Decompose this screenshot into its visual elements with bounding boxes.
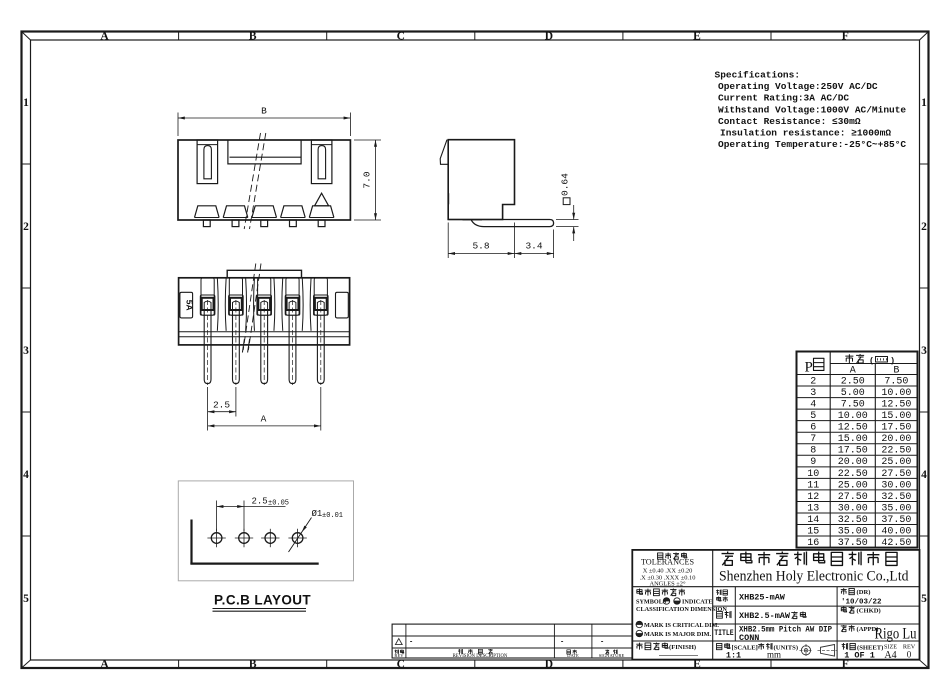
svg-text:1: 1 [921, 97, 927, 109]
svg-text:-: - [409, 639, 413, 647]
svg-text:Contact Resistance: ≤30mΩ: Contact Resistance: ≤30mΩ [718, 116, 861, 127]
svg-text:1:1: 1:1 [726, 651, 741, 661]
svg-text:11: 11 [807, 480, 819, 491]
svg-text:12: 12 [807, 492, 819, 503]
svg-text:1 OF 1: 1 OF 1 [844, 651, 875, 661]
svg-text:40.00: 40.00 [881, 526, 911, 537]
svg-text:3.4: 3.4 [525, 241, 542, 252]
svg-text:DATE: DATE [567, 653, 579, 658]
svg-text:5: 5 [921, 593, 927, 605]
svg-text:±0.01: ±0.01 [322, 512, 343, 520]
svg-text:20.00: 20.00 [881, 434, 911, 445]
svg-text:22.50: 22.50 [838, 469, 868, 480]
svg-text:Operating Voltage:250V AC/DC: Operating Voltage:250V AC/DC [718, 81, 878, 92]
svg-text:16: 16 [807, 538, 819, 549]
svg-text:3: 3 [810, 388, 816, 399]
svg-text:4: 4 [921, 469, 927, 481]
svg-text:E: E [693, 30, 701, 42]
svg-text:13: 13 [807, 503, 819, 514]
svg-text:D: D [545, 30, 553, 42]
svg-text:A: A [850, 365, 856, 376]
svg-text:CLASSIFICATION DIMENSION: CLASSIFICATION DIMENSION [636, 606, 727, 613]
svg-text:15: 15 [807, 526, 819, 537]
svg-text:3: 3 [921, 345, 927, 357]
svg-text:±0.05: ±0.05 [268, 500, 289, 508]
svg-text:INDICATE: INDICATE [682, 599, 712, 606]
svg-text:Current Rating:3A AC/DC: Current Rating:3A AC/DC [718, 93, 849, 104]
svg-text:42.50: 42.50 [881, 538, 911, 549]
svg-text:A4: A4 [884, 650, 896, 661]
svg-text:B: B [893, 365, 899, 376]
svg-text:7.50: 7.50 [884, 376, 908, 387]
svg-text:0: 0 [907, 650, 912, 660]
svg-text:6: 6 [810, 423, 816, 434]
svg-text:(DR): (DR) [857, 589, 871, 596]
svg-text:2: 2 [23, 221, 29, 233]
svg-text:TOLERANCES: TOLERANCES [641, 558, 695, 567]
svg-text:10: 10 [807, 469, 819, 480]
svg-text:27.50: 27.50 [838, 492, 868, 503]
svg-text:5A: 5A [184, 300, 194, 311]
svg-text:1: 1 [23, 97, 29, 109]
svg-text:-: - [560, 639, 564, 647]
svg-text:32.50: 32.50 [881, 492, 911, 503]
svg-text:2.5: 2.5 [213, 400, 230, 411]
svg-text:32.50: 32.50 [838, 515, 868, 526]
svg-text:(CHKD): (CHKD) [857, 608, 881, 615]
svg-text:Operating Temperature:-25°C~+8: Operating Temperature:-25°C~+85°C [718, 139, 906, 150]
svg-text:25.00: 25.00 [881, 457, 911, 468]
svg-text:A: A [100, 30, 109, 42]
svg-text:XHB25-mAW: XHB25-mAW [739, 593, 786, 603]
svg-text:20.00: 20.00 [838, 457, 868, 468]
svg-text:(FINISH): (FINISH) [669, 644, 696, 651]
svg-text:30.00: 30.00 [881, 480, 911, 491]
svg-text:2: 2 [921, 221, 927, 233]
svg-text:0.64: 0.64 [560, 173, 571, 196]
svg-text:A: A [100, 658, 109, 670]
svg-text:B: B [249, 658, 257, 670]
svg-text:X ±0.40 .XX ±0.20: X ±0.40 .XX ±0.20 [643, 567, 693, 574]
svg-text:5: 5 [810, 411, 816, 422]
svg-text:SIGNATURE: SIGNATURE [599, 653, 625, 658]
svg-text:(: ( [869, 356, 874, 366]
svg-text:10.00: 10.00 [838, 411, 868, 422]
svg-text:7.50: 7.50 [841, 400, 865, 411]
svg-text:mm: mm [767, 650, 781, 660]
svg-text:SYMBOLS: SYMBOLS [636, 599, 667, 606]
svg-text:15.00: 15.00 [838, 434, 868, 445]
svg-text:MARK IS MAJOR DIM.: MARK IS MAJOR DIM. [644, 631, 711, 638]
svg-text:ANGLES ±2°: ANGLES ±2° [649, 580, 686, 587]
svg-text:-: - [600, 639, 604, 647]
svg-text:MARK IS CRITICAL DIM.: MARK IS CRITICAL DIM. [644, 622, 719, 629]
svg-text:8: 8 [810, 446, 816, 457]
svg-text:XHB2.5-mAW: XHB2.5-mAW [739, 611, 791, 621]
svg-text:5.8: 5.8 [472, 241, 489, 252]
svg-text:Withstand Voltage:1000V AC/Min: Withstand Voltage:1000V AC/Minute [718, 104, 906, 115]
svg-text:A: A [261, 414, 267, 425]
svg-text:2.5: 2.5 [252, 497, 268, 507]
svg-text:CONN: CONN [739, 633, 759, 643]
svg-text:Rigo Lu: Rigo Lu [875, 626, 917, 643]
svg-text:REV: REV [394, 653, 404, 658]
svg-text:4: 4 [23, 469, 29, 481]
svg-text:P: P [805, 360, 813, 376]
svg-text:B: B [261, 106, 267, 117]
svg-text:10.00: 10.00 [881, 388, 911, 399]
svg-text:12.50: 12.50 [881, 400, 911, 411]
svg-text:22.50: 22.50 [881, 446, 911, 457]
svg-text:30.00: 30.00 [838, 503, 868, 514]
svg-text:B: B [249, 30, 257, 42]
svg-text:D: D [545, 658, 553, 670]
svg-text:C: C [397, 658, 405, 670]
svg-text:Shenzhen Holy Electronic Co.,L: Shenzhen Holy Electronic Co.,Ltd [719, 569, 909, 585]
svg-text:27.50: 27.50 [881, 469, 911, 480]
svg-text:35.00: 35.00 [881, 503, 911, 514]
svg-text:17.50: 17.50 [881, 423, 911, 434]
svg-text:TITLE: TITLE [714, 629, 734, 638]
svg-text:3: 3 [23, 345, 29, 357]
svg-text:2.50: 2.50 [841, 376, 865, 387]
svg-text:Insulation resistance: ≥1000mΩ: Insulation resistance: ≥1000mΩ [720, 128, 891, 139]
svg-text:15.00: 15.00 [881, 411, 911, 422]
svg-text:Ø1: Ø1 [312, 509, 323, 519]
svg-text:Specifications:: Specifications: [715, 70, 801, 81]
svg-text:'10/03/22: '10/03/22 [841, 599, 882, 607]
svg-text:2: 2 [810, 376, 816, 387]
svg-text:5: 5 [23, 593, 29, 605]
svg-text:P.C.B LAYOUT: P.C.B LAYOUT [214, 593, 311, 608]
svg-text:F: F [842, 30, 849, 42]
svg-text:5.00: 5.00 [841, 388, 865, 399]
svg-text:37.50: 37.50 [881, 515, 911, 526]
svg-text:37.50: 37.50 [838, 538, 868, 549]
svg-text:9: 9 [810, 457, 816, 468]
svg-text:REVISION DESCRIPTION: REVISION DESCRIPTION [453, 654, 508, 659]
svg-text:35.00: 35.00 [838, 526, 868, 537]
svg-text:17.50: 17.50 [838, 446, 868, 457]
svg-text:7: 7 [810, 434, 816, 445]
svg-text:14: 14 [807, 515, 819, 526]
svg-text:7.0: 7.0 [362, 171, 373, 188]
svg-text:25.00: 25.00 [838, 480, 868, 491]
svg-text:4: 4 [810, 400, 816, 411]
svg-text:12.50: 12.50 [838, 423, 868, 434]
svg-text:C: C [397, 30, 405, 42]
